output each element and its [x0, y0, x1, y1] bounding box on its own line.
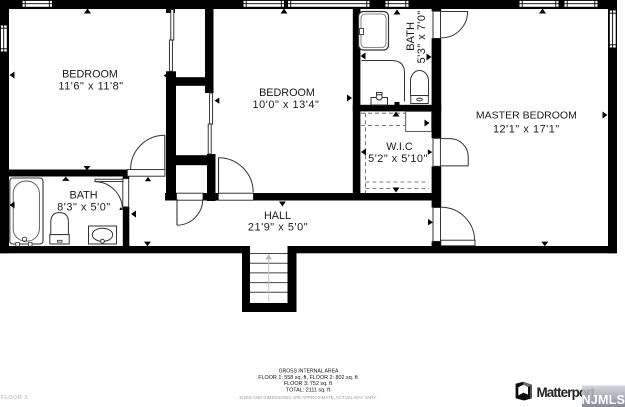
svg-text:FLOOR 3: 752 sq. ft: FLOOR 3: 752 sq. ft — [284, 381, 333, 387]
svg-text:MASTER BEDROOM: MASTER BEDROOM — [476, 109, 577, 121]
svg-text:GROSS INTERNAL AREA: GROSS INTERNAL AREA — [279, 369, 339, 375]
svg-text:21'9" x 5'0": 21'9" x 5'0" — [248, 221, 308, 233]
svg-text:BATH: BATH — [70, 189, 98, 201]
svg-text:11'6" x 11'8": 11'6" x 11'8" — [58, 81, 123, 93]
svg-text:TOTAL: 2111 sq. ft: TOTAL: 2111 sq. ft — [286, 387, 331, 393]
svg-text:HALL: HALL — [264, 210, 291, 222]
svg-text:5'2" x 5'10": 5'2" x 5'10" — [368, 153, 428, 165]
svg-text:NJMLS: NJMLS — [581, 393, 625, 407]
svg-text:SIZES AND DIMENSIONS ARE APPRO: SIZES AND DIMENSIONS ARE APPROXIMATE, AC… — [239, 395, 376, 400]
svg-text:8'3" x 5'0": 8'3" x 5'0" — [57, 201, 111, 213]
svg-text:FLOOR 3: FLOOR 3 — [1, 395, 29, 401]
svg-text:BEDROOM: BEDROOM — [62, 68, 118, 80]
svg-text:W.I.C: W.I.C — [386, 141, 413, 153]
svg-text:BEDROOM: BEDROOM — [259, 87, 315, 99]
svg-text:10'0" x 13'4": 10'0" x 13'4" — [253, 99, 320, 111]
svg-text:FLOOR 1: 558 sq. ft, FLOOR 2:: FLOOR 1: 558 sq. ft, FLOOR 2: 802 sq. ft — [258, 375, 358, 381]
svg-text:12'1" x 17'1": 12'1" x 17'1" — [493, 123, 560, 135]
svg-text:5'3" x 7'0": 5'3" x 7'0" — [416, 10, 428, 63]
